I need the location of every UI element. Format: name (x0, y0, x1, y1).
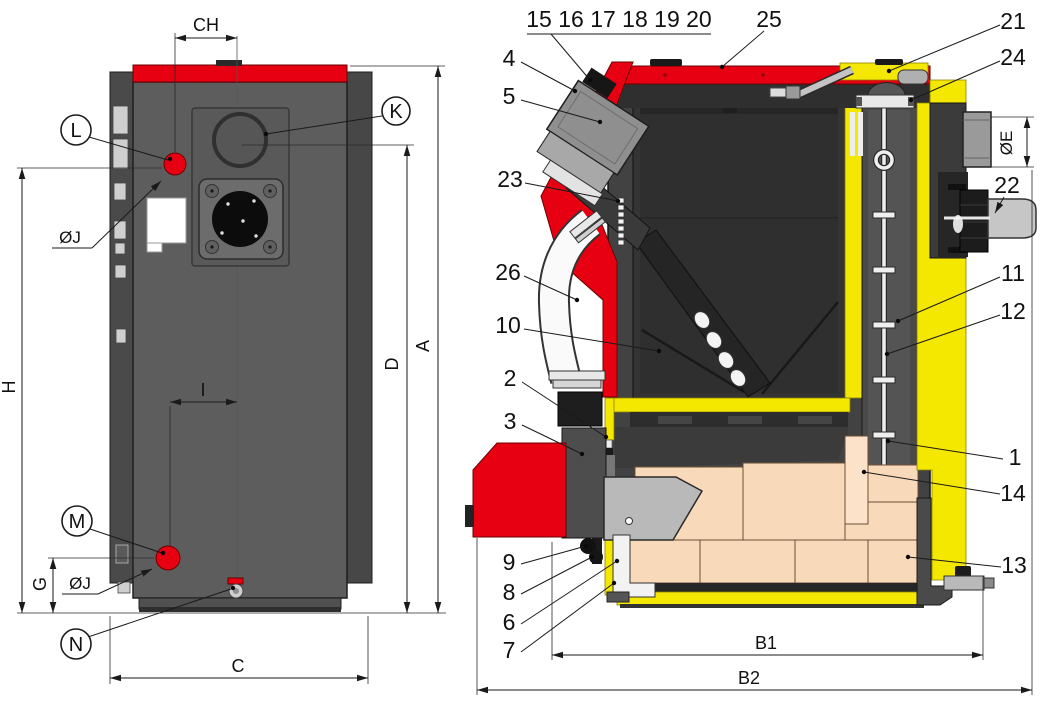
dim-label-d: D (382, 358, 402, 371)
part-label-21: 21 (1000, 8, 1026, 34)
part-label-11: 11 (1001, 260, 1025, 286)
part-label-6: 6 (503, 609, 516, 635)
rear-view: CH I C H G D A ØJ ØJ (0, 15, 446, 684)
channel-trim (850, 112, 855, 156)
dim-label-b2: B2 (738, 668, 760, 688)
part-label-8: 8 (503, 579, 516, 605)
bottom-edge (620, 604, 924, 608)
burner-mount-box (562, 428, 606, 538)
burner-housing-tab (465, 505, 474, 527)
part-label-3: 3 (504, 408, 517, 434)
insulation-band-bottom (612, 398, 850, 412)
svg-text:L: L (70, 120, 81, 142)
channel-trim-2 (858, 112, 863, 156)
right-side-panel (347, 72, 372, 583)
roof-cap-knob (875, 59, 903, 65)
part-label-22: 22 (994, 172, 1020, 198)
firebrick-baffle (845, 436, 868, 524)
upper-port-L (164, 153, 186, 175)
dim-label-ch: CH (193, 15, 219, 35)
dim-label-g: G (30, 577, 50, 591)
drawing-canvas: CH I C H G D A ØJ ØJ (0, 0, 1055, 702)
floor-plate (614, 583, 930, 592)
nozzle-plate-hole (626, 518, 633, 525)
label-plate-tab (147, 243, 162, 252)
dim-label-h: H (0, 381, 19, 394)
fastener-strip (618, 198, 624, 245)
dim-label-c: C (232, 656, 245, 676)
damper-bar (856, 95, 914, 108)
part-label-10: 10 (495, 312, 521, 338)
roof-cap-left (650, 59, 682, 66)
burner-mounting-flange (199, 179, 283, 259)
part-label-25: 25 (756, 6, 782, 32)
svg-text:M: M (69, 511, 86, 533)
flue-duct (963, 112, 991, 167)
top-bracket (216, 60, 242, 66)
part-label-23: 23 (497, 166, 523, 192)
part-label-4: 4 (503, 45, 516, 71)
part-label-14: 14 (1000, 480, 1026, 506)
part-label-26: 26 (495, 259, 521, 285)
dia-label-j-bottom: ØJ (69, 574, 91, 593)
red-top-strip (133, 65, 347, 82)
fan-motor (988, 199, 1036, 238)
part-label-5: 5 (503, 83, 516, 109)
part-label-9: 9 (503, 549, 516, 575)
label-plate (147, 198, 186, 243)
dim-label-e: ØE (997, 131, 1016, 156)
part-label-1: 1 (1009, 444, 1022, 470)
dim-label-b1: B1 (755, 633, 777, 653)
dim-label-a: A (413, 340, 433, 352)
ash-door-knob (580, 538, 603, 564)
part-label-12: 12 (1000, 298, 1026, 324)
drain-valve-N (228, 578, 243, 598)
part-label-group-15-20: 15 16 17 18 19 20 (526, 6, 711, 32)
part-label-2: 2 (504, 365, 517, 391)
part-label-13: 13 (1001, 552, 1027, 578)
lower-port-M (156, 546, 180, 570)
section-view: 15 16 17 18 19 20 4 5 23 26 10 2 3 9 8 6 (465, 6, 1036, 695)
flue-opening (214, 114, 266, 166)
dia-label-j-top: ØJ (59, 228, 81, 247)
boiler-dimension-drawing: CH I C H G D A ØJ ØJ (0, 0, 1055, 702)
burner-housing (473, 443, 566, 537)
front-foot (607, 592, 629, 602)
svg-text:K: K (389, 101, 403, 123)
svg-text:N: N (69, 634, 83, 656)
part-label-7: 7 (503, 637, 516, 663)
bottom-insulation (617, 592, 927, 605)
feeder-housing (558, 392, 602, 426)
part-label-24: 24 (1000, 44, 1026, 70)
dim-label-i: I (200, 380, 205, 400)
